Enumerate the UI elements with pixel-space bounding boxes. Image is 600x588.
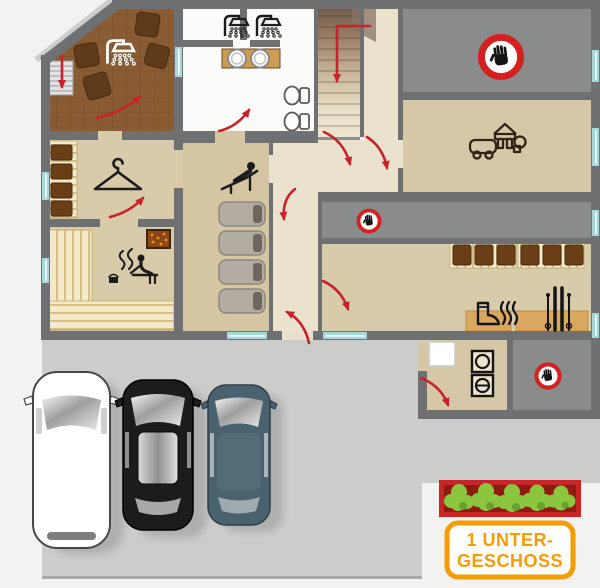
toilet-icon [285,113,310,131]
roof [217,433,261,491]
corridor-strip [273,140,318,331]
car-white [24,372,119,548]
terrace-stairs [47,61,73,95]
level-sign-line1: 1 UNTER- [466,530,553,550]
hedge-planter [439,480,581,517]
sunroof [138,432,178,484]
floor-plan-canvas: 1 UNTER- GESCHOSS [0,0,600,588]
no-entry-hand-icon [536,364,559,387]
floor-plan: 1 UNTER- GESCHOSS [0,0,600,588]
windshield [131,394,185,426]
windshield [215,398,263,428]
changing-bench [47,141,77,218]
windshield [42,396,101,431]
car-slate [201,385,277,525]
sink-icon [228,50,246,68]
car-black [115,380,201,530]
no-entry-hand-icon [358,210,379,231]
no-entry-hand-icon [481,37,520,76]
level-sign-line2: GESCHOSS [457,551,563,571]
sink-icon [251,50,269,68]
rear-window [47,532,96,540]
laundry-sink [429,342,455,366]
sauna-heater [147,230,170,248]
corridor-junction [318,140,364,192]
toilet-icon [285,87,310,105]
ski-mat [516,311,588,331]
level-sign: 1 UNTER- GESCHOSS [447,523,573,577]
